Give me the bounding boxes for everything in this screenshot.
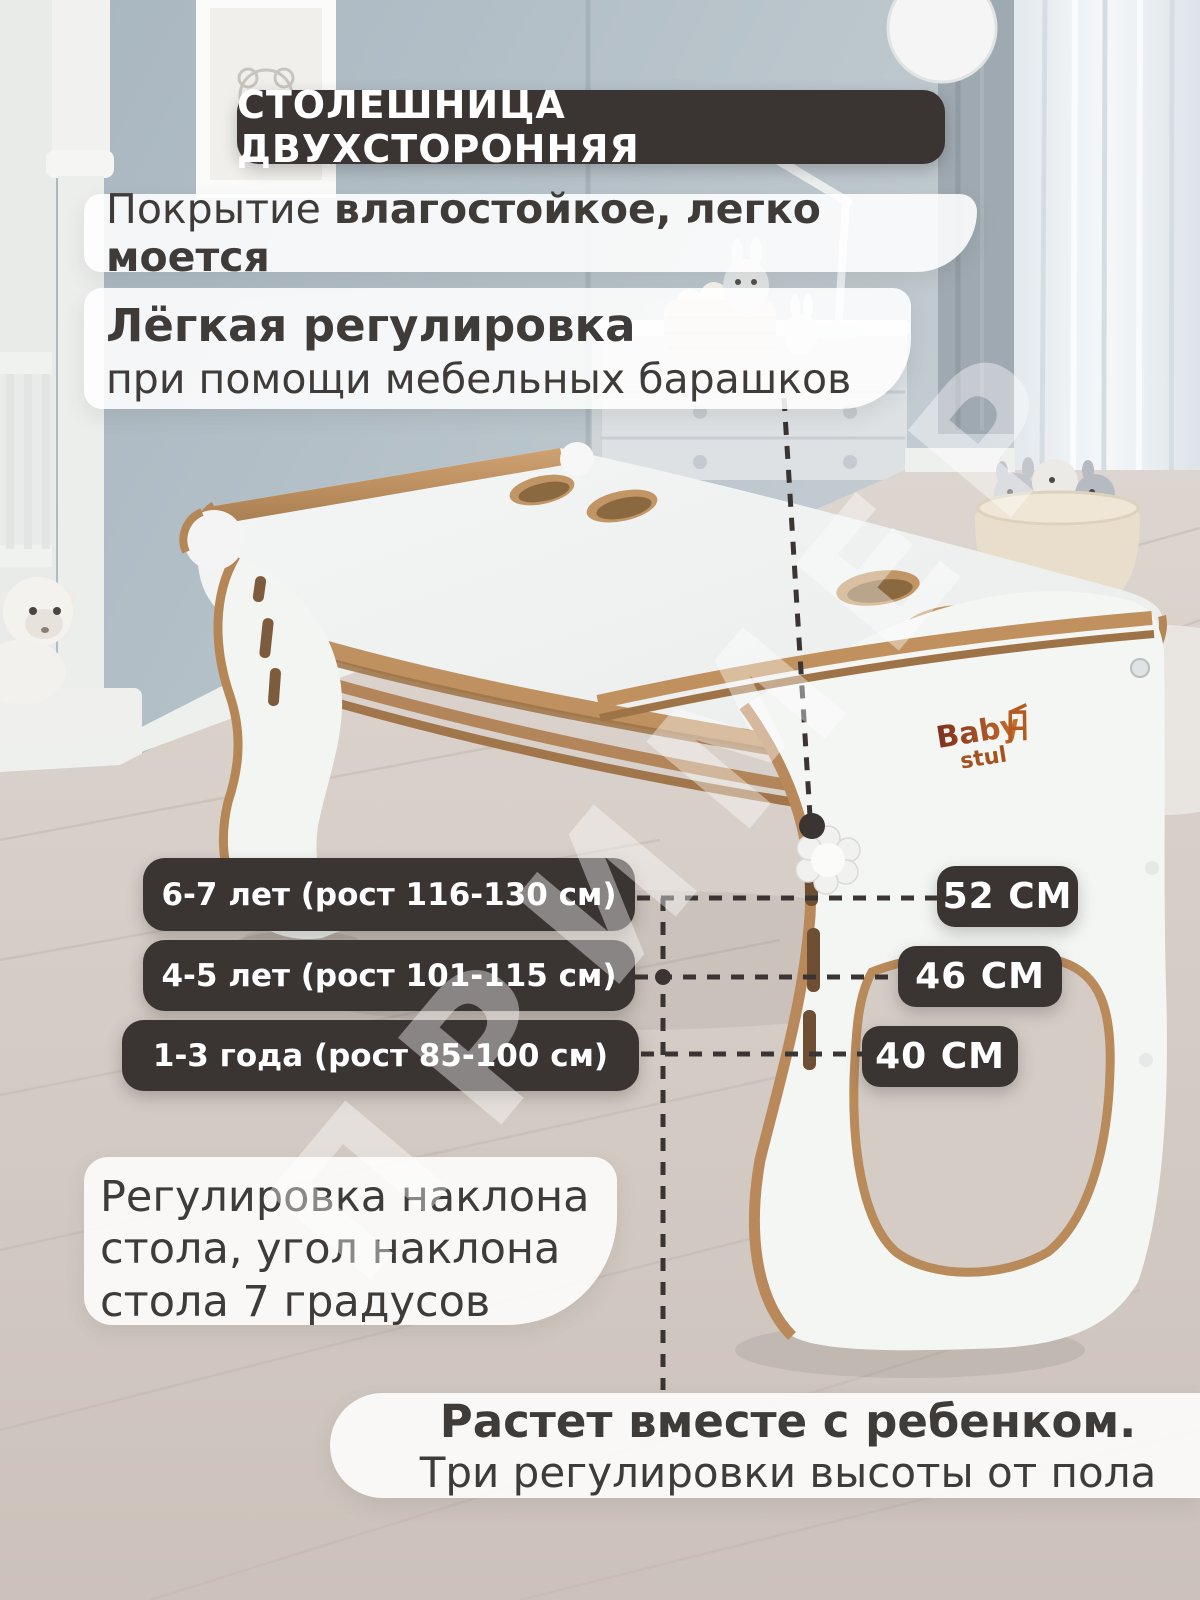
- grow-subtitle: Три регулировки высоты от пола: [420, 1448, 1157, 1497]
- age-pill-1-3-label: 1-3 года (рост 85-100 см): [153, 1038, 608, 1074]
- grow-title: Растет вместе с ребенком.: [440, 1395, 1137, 1448]
- grow-feature-box: Растет вместе с ребенком. Три регулировк…: [330, 1393, 1200, 1498]
- height-pill-52-label: 52 СМ: [943, 876, 1073, 917]
- age-pill-4-5: 4-5 лет (рост 101-115 см): [143, 940, 635, 1011]
- age-pill-6-7-label: 6-7 лет (рост 116-130 см): [161, 877, 616, 913]
- adjustment-subtitle: при помощи мебельных барашков: [106, 355, 851, 403]
- coating-text: Покрытие влагостойкое, легко моется: [106, 185, 977, 281]
- tilt-line-3: стола 7 градусов: [100, 1276, 617, 1328]
- adjustment-feature-box: Лёгкая регулировка при помощи мебельных …: [84, 288, 911, 409]
- adjustment-title: Лёгкая регулировка: [106, 298, 911, 354]
- measurement-cross-dot: [655, 969, 671, 985]
- tilt-feature-box: Регулировка наклона стола, угол наклона …: [84, 1157, 617, 1325]
- height-pill-40: 40 СМ: [862, 1026, 1018, 1087]
- height-pill-46: 46 СМ: [898, 946, 1062, 1007]
- height-pill-40-label: 40 СМ: [875, 1036, 1005, 1077]
- top-badge: СТОЛЕШНИЦА ДВУХСТОРОННЯЯ: [237, 90, 945, 164]
- age-pill-1-3: 1-3 года (рост 85-100 см): [122, 1020, 639, 1091]
- tilt-line-1: Регулировка наклона: [100, 1171, 617, 1223]
- height-pill-46-label: 46 СМ: [915, 956, 1045, 997]
- product-card: Baby stul: [0, 0, 1200, 1600]
- top-badge-label: СТОЛЕШНИЦА ДВУХСТОРОННЯЯ: [237, 83, 945, 171]
- measurement-anchor-dot: [799, 813, 825, 839]
- tilt-line-2: стола, угол наклона: [100, 1223, 617, 1275]
- height-pill-52: 52 СМ: [937, 866, 1078, 927]
- age-pill-4-5-label: 4-5 лет (рост 101-115 см): [161, 958, 616, 994]
- age-pill-6-7: 6-7 лет (рост 116-130 см): [143, 858, 635, 931]
- coating-feature-box: Покрытие влагостойкое, легко моется: [84, 194, 977, 272]
